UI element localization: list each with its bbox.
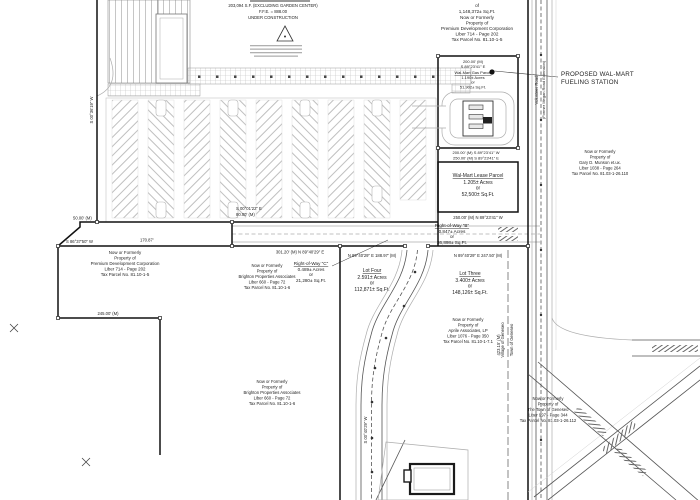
crosswalk-hatch (498, 227, 518, 232)
site-plan-drawing: 203,094 S.F. (EXCLUDING GARDEN CENTER) F… (0, 0, 700, 500)
median-hatch (652, 345, 698, 352)
parcel-text: or (370, 281, 375, 287)
lease-bottom-dim: 250.00' (M) N 89°23'41" W (453, 215, 502, 220)
house-parcel (376, 440, 468, 500)
lease-title: Wal-Mart Lease Parcel (453, 173, 504, 179)
parcel-text: Liber 714 - Page 202 (456, 32, 499, 37)
rowc-sqft: 21,280± Sq.Ft. (296, 278, 326, 283)
parcel-text: 1,148,372± Sq.Ft. (459, 9, 496, 14)
brighton-sw-label: Now or Formerly Property of Brighton Pro… (243, 379, 300, 406)
parcel-text: Lot Three (459, 271, 481, 277)
parcel-text: Lot Four (363, 268, 382, 274)
parcel-text: Tax Parcel No. 81.10-1-5 (101, 272, 150, 277)
gas-sqft: 51,902± Sq.Ft. (460, 85, 486, 90)
triangle-symbol (277, 26, 293, 41)
dim-text: S 86°37'50" W (66, 239, 93, 244)
dim-text: S 00°01'22" E (236, 206, 262, 211)
fueling-callout-line2: FUELING STATION (561, 79, 618, 86)
median-hatch (574, 406, 608, 436)
house-footprint (410, 464, 454, 494)
parcel-text: Property of (590, 155, 611, 160)
parcel-text: The Town of Geneseo (528, 407, 570, 412)
parcel-text: 148,126± Sq.Ft. (452, 290, 488, 296)
callout-leader (495, 71, 559, 77)
parcel-text: Liber 997 - Page 344 (528, 413, 568, 418)
parcel-text: Now or Formerly (252, 263, 284, 268)
parcel-text: Tax Parcel No. 81.03-1-26.112 (520, 418, 577, 423)
dim-text: 170.87' (140, 238, 154, 243)
premium-left-label: Now or Formerly Property of Premium Deve… (91, 250, 160, 277)
lease-sqft: 52,500± Sq.Ft. (462, 192, 495, 198)
parcel-text: Property of (262, 385, 283, 390)
parcel-text: Liber 660 - Page 72 (254, 396, 291, 401)
road-shoulder (528, 358, 700, 492)
dim-text: 245.00' (M) (97, 311, 119, 316)
dim-text: S 00°40'29" W (363, 416, 368, 443)
triangle-symbol-dot (284, 36, 286, 38)
road-name: Volunteer Road (534, 75, 539, 105)
front-walk-west (108, 84, 200, 96)
dim-text: S 00°36'19" W (89, 96, 94, 123)
parcel-text: Liber 1038 - Page 264 (579, 166, 621, 171)
lease-parcel: Wal-Mart Lease Parcel 1.205± Acres or 52… (438, 162, 518, 220)
parcel-text: Property of (114, 256, 136, 261)
clipped-title-line (250, 0, 310, 2)
parcel-text: of (475, 3, 480, 8)
fuel-loop-entry-gap (440, 106, 447, 128)
parcel-text: Tax Parcel No. 81.03-1-26.110 (572, 171, 629, 176)
parcel-text: Property of (257, 269, 278, 274)
parcel-text: Brighton Properties Associates (243, 390, 300, 395)
parcel-text: Liber 660 - Page 72 (249, 280, 286, 285)
brighton-mid-label: Now or Formerly Property of Brighton Pro… (238, 263, 295, 290)
municipal-label-village: Village of Geneseo (500, 322, 505, 358)
parcel-text: Tax Parcel No. 81.10-1-6 (249, 401, 296, 406)
yard-boundary (376, 440, 405, 500)
municipal-label-town: Town of Geneseo (509, 323, 514, 356)
parcel-text: Now or Formerly (257, 379, 289, 384)
parcel-text: Property of (458, 323, 479, 328)
gas-bearing: S 89°23'41" E (461, 64, 486, 69)
lot-four-label: Lot Four 2.591± Acres or 112,871± Sq.Ft. (354, 268, 389, 293)
dim-text: 50.00' (M) (73, 216, 92, 221)
misc-marks (10, 324, 90, 466)
parcel-text: Property of (466, 21, 489, 26)
illegible-note-lines (250, 45, 302, 57)
munson-label: Now or Formerly Property of Gary D. Muns… (572, 149, 629, 176)
curb-return (552, 318, 632, 340)
road-edge (538, 362, 700, 500)
median-hatch (614, 446, 648, 476)
parcel-text: Aprile Associates, LP (448, 328, 488, 333)
aprile-label: Now or Formerly Property of Aprile Assoc… (443, 317, 493, 344)
cross-mark (82, 458, 90, 466)
parcel-text: Liber 1076 - Page 350 (447, 334, 489, 339)
house-wing (404, 470, 411, 482)
fuel-kiosk (483, 117, 492, 124)
parcel-text: Premium Development Corporation (441, 26, 513, 31)
rowc-or: or (309, 272, 314, 277)
parcel-text: Now or Formerly (460, 15, 495, 20)
cross-mark (10, 324, 18, 332)
building-note-construction: UNDER CONSTRUCTION (248, 15, 298, 20)
premium-parcel-top-label: of 1,148,372± Sq.Ft. Now or Formerly Pro… (441, 3, 513, 42)
rowb-or: or (450, 234, 455, 239)
rowc-title: Right-of-Way "C" (294, 261, 329, 266)
fueling-callout-line1: PROPOSED WAL-MART (561, 71, 634, 78)
parcel-text: Brighton Properties Associates (238, 274, 295, 279)
crosswalk-hatch (498, 236, 518, 241)
parcel-text: or (468, 284, 473, 290)
parcel-text: Liber 714 - Page 202 (104, 267, 146, 272)
lease-or: or (476, 186, 481, 192)
road-name-former: (Former Megan Road Extension) (541, 60, 546, 119)
parcel-text: Now or Formerly (453, 317, 485, 322)
parcel-text: Now or Formerly (109, 250, 142, 255)
front-walk (188, 68, 471, 84)
building-roof-west (108, 0, 158, 83)
gas-bottom-dim: 200.00' (M) S 89°23'41" W (452, 150, 499, 155)
parcel-text: Premium Development Corporation (91, 261, 160, 266)
road-edge (534, 366, 700, 497)
parcel-text: Tax Parcel No. 81.10-1-6 (244, 285, 291, 290)
lot-three-label: Lot Three 3.400± Acres or 148,126± Sq.Ft… (452, 271, 488, 296)
lease-top-dim: 250.00' (M) S 89°23'41" E (453, 156, 499, 161)
parcel-text: Now or Formerly (533, 396, 565, 401)
parcel-text: Tax Parcel No. 81.10-1-5 (452, 37, 503, 42)
rowb-sqft: 36,898± Sq.Ft. (437, 240, 467, 245)
walmart-building: 203,094 S.F. (EXCLUDING GARDEN CENTER) F… (108, 0, 471, 96)
parcel-text: Gary D. Munson et.ux. (579, 160, 621, 165)
building-note-ffe: F.F.E. = 888.00 (259, 9, 288, 14)
lot-three-top-dim: N 89°40'29" E 247.50' (M) (454, 253, 503, 258)
dim-text: 80.00' (M) (236, 212, 255, 217)
parcel-text: 112,871± Sq.Ft. (354, 287, 389, 293)
building-note-area: 203,094 S.F. (EXCLUDING GARDEN CENTER) (228, 3, 318, 8)
road-edge (528, 374, 676, 500)
callout-dot (489, 69, 494, 74)
rowb-title: Right-of-Way "B" (435, 223, 470, 228)
parcel-text: Tax Parcel No. 81.10-1-7.1 (443, 339, 493, 344)
building-entrance-tower (156, 14, 187, 83)
parcel-text: Now or Formerly (585, 149, 617, 154)
pump-islands (469, 105, 483, 129)
survey-site-plan: 203,094 S.F. (EXCLUDING GARDEN CENTER) F… (0, 0, 700, 500)
corridor-dim: 301.20' (M) N 89°40'29" E (276, 250, 324, 255)
